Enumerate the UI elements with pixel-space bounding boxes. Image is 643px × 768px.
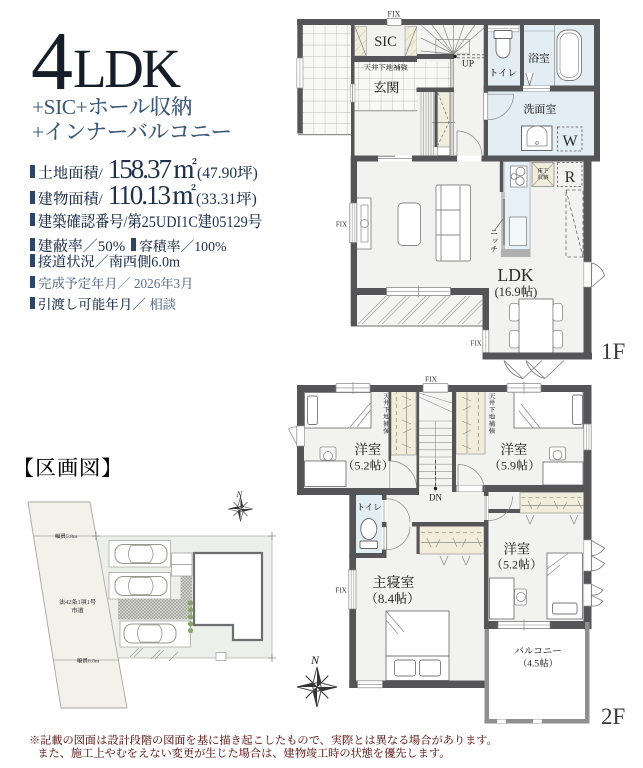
svg-text:幅員5.8m: 幅員5.8m [55,532,78,540]
svg-text:N: N [236,488,244,500]
svg-text:市道: 市道 [71,606,83,615]
svg-text:幅員6.0m: 幅員6.0m [77,657,100,665]
